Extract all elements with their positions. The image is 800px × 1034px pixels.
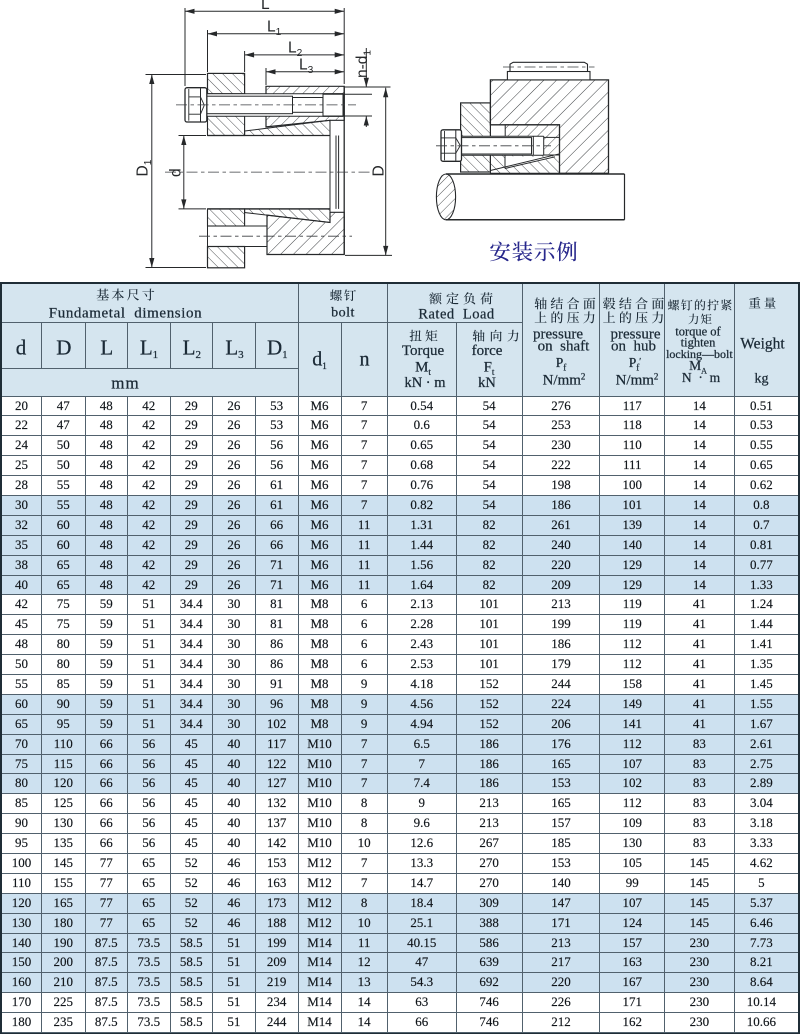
svg-text:L1: L1	[267, 19, 282, 38]
svg-text:L: L	[261, 0, 270, 13]
svg-text:L3: L3	[299, 57, 314, 76]
svg-text:D1: D1	[135, 159, 154, 176]
svg-text:D: D	[371, 165, 388, 176]
svg-text:d: d	[168, 168, 185, 177]
svg-text:n-d1: n-d1	[354, 50, 373, 78]
